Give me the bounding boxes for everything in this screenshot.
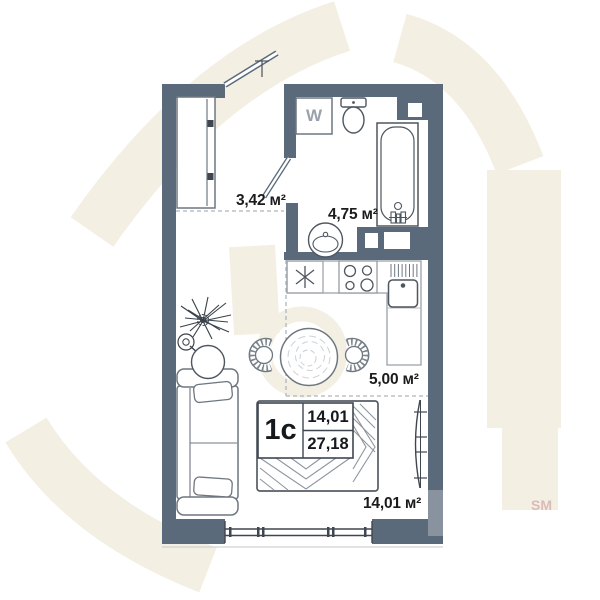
bathtub [377, 123, 418, 226]
bathtub-faucet [389, 212, 407, 223]
living-room-area-label: 14,01 м² [363, 495, 421, 513]
chair-right [346, 339, 369, 372]
wardrobe [177, 97, 215, 208]
dining-table [281, 329, 338, 386]
window [225, 519, 372, 544]
stove [339, 261, 377, 293]
unit-living-area-value: 14,01 [303, 403, 353, 431]
chair-left [249, 338, 272, 371]
watermark-text: SM [531, 497, 552, 513]
plant [180, 297, 231, 339]
tv [414, 400, 427, 488]
floorplan-canvas: 3,42 м² 4,75 м² 5,00 м² 14,01 м² W 1с 14… [0, 0, 600, 600]
kitchen-area-label: 5,00 м² [369, 371, 419, 389]
sofa [177, 369, 238, 515]
bathroom-area-label: 4,75 м² [328, 206, 378, 224]
floorplan-drawing [0, 0, 600, 600]
unit-type-label: 1с [258, 403, 303, 458]
washing-machine-label: W [296, 98, 332, 134]
unit-total-area-value: 27,18 [303, 431, 353, 458]
watermark-glow [428, 490, 443, 536]
bathroom-sink [309, 223, 343, 257]
hallway-area-label: 3,42 м² [236, 192, 286, 210]
toilet [341, 98, 366, 133]
